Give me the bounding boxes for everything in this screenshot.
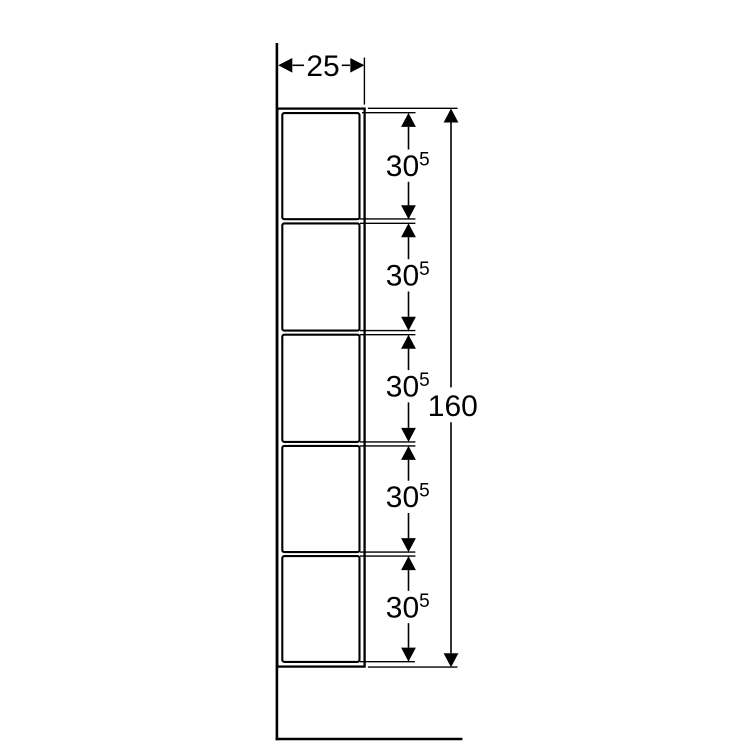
svg-text:160: 160	[428, 390, 478, 423]
svg-text:25: 25	[306, 50, 339, 83]
